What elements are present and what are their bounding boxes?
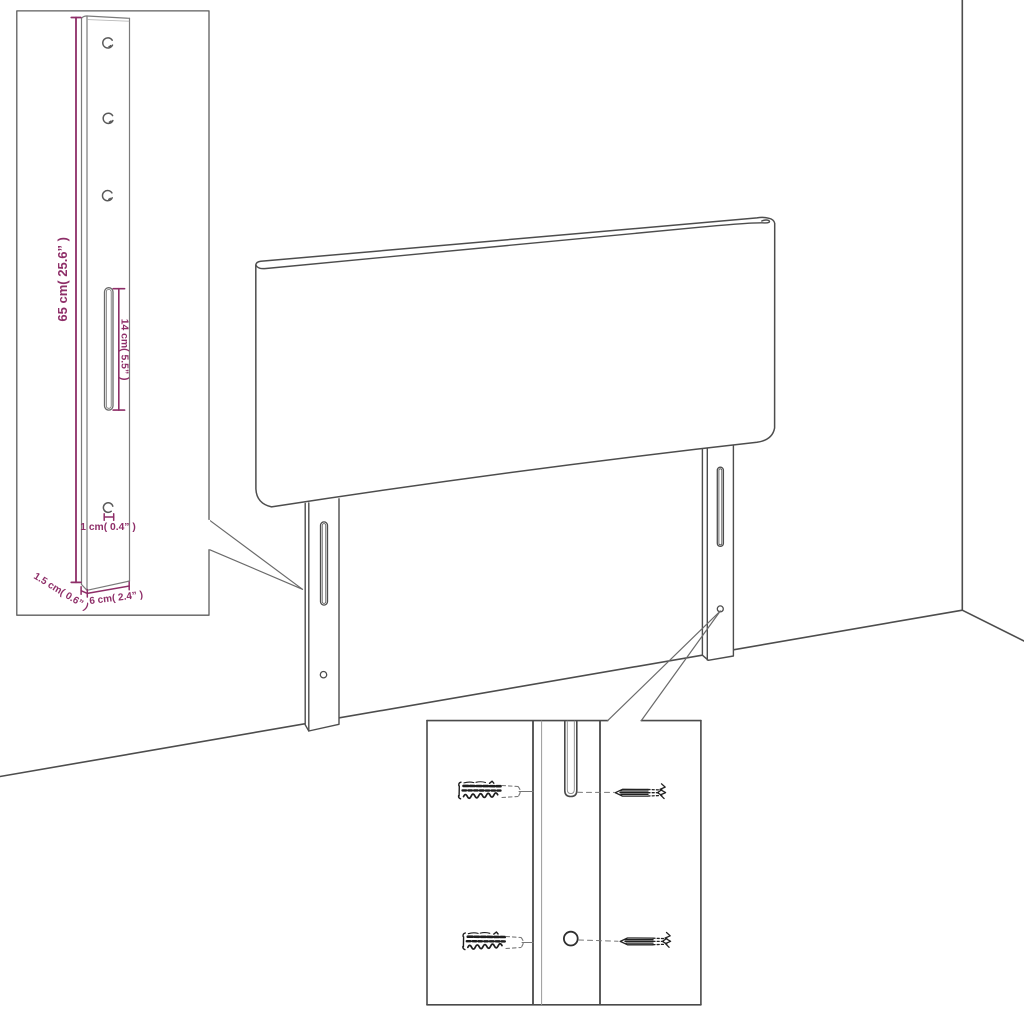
svg-text:65 cm( 25.6” ): 65 cm( 25.6” ) (55, 237, 70, 322)
svg-text:14 cm( 5.5” ): 14 cm( 5.5” ) (119, 319, 130, 381)
svg-text:1 cm( 0.4” ): 1 cm( 0.4” ) (80, 522, 136, 533)
